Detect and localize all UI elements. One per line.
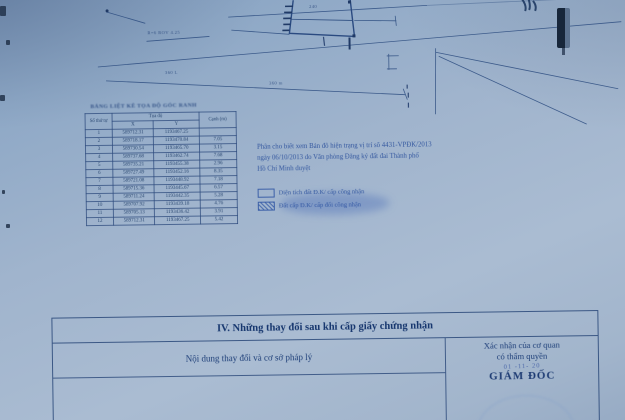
- parcel-outline: [282, 0, 356, 50]
- left-column-header: Nội dung thay đổi và cơ sở pháp lý: [53, 338, 445, 378]
- coord-cell: 5.42: [200, 216, 237, 225]
- edge-speck: [0, 95, 5, 101]
- coord-row: 12589712.311193467.255.42: [86, 216, 237, 226]
- edge-speck: [6, 40, 10, 45]
- section-iv-box: IV. Những thay đổi sau khi cấp giấy chứn…: [51, 310, 600, 420]
- ink-smudge: [280, 192, 390, 216]
- map-road-label: R=6 ROV 4.25: [147, 30, 180, 35]
- coord-cell: 1193467.25: [155, 216, 201, 225]
- section-iv-left-column: Nội dung thay đổi và cơ sở pháp lý Chuyể…: [53, 338, 446, 420]
- coord-cell: 12: [86, 217, 113, 225]
- parcel-number-label: 240: [309, 4, 317, 9]
- note-line-3: Hồ Chí Minh duyệt: [257, 161, 447, 175]
- legend-item-2: Đất cấp Đ.K/ cấp đổi công nhận: [258, 197, 458, 213]
- photographed-land-certificate: R=6 ROV 4.25 360 L 360 m 240 BẢNG LIỆT K…: [0, 0, 625, 420]
- map-distance-label-right: 360 m: [269, 80, 283, 85]
- map-legend: Diện tích đất Đ.K/ cấp công nhận Đất cấp…: [258, 184, 458, 213]
- round-seal-outline: [476, 394, 575, 420]
- edge-speck: [0, 6, 6, 16]
- legend-swatch-hatched-icon: [258, 202, 275, 211]
- vegetation-scribble-icon: [522, 0, 536, 11]
- right-column-header: Xác nhận của cơ quan có thẩm quyền: [446, 336, 598, 363]
- map-reference-note: Phần cho biết xem Bản đồ hiện trạng vị t…: [257, 139, 447, 175]
- binder-mark: [557, 8, 570, 48]
- section-iv-right-column: Xác nhận của cơ quan có thẩm quyền 01 -1…: [445, 336, 599, 420]
- map-distance-label-left: 360 L: [165, 70, 178, 75]
- coordinate-table: Số thứ tự Tọa độ Cạnh (m) X Y 1589712.31…: [85, 111, 239, 226]
- edge-speck: [6, 224, 10, 228]
- section-iv-columns: Nội dung thay đổi và cơ sở pháp lý Chuyể…: [53, 336, 599, 420]
- binder-mark-tail: [562, 48, 565, 55]
- legend-swatch-empty-icon: [258, 189, 275, 198]
- edge-speck: [2, 190, 5, 194]
- col-header-length: Cạnh (m): [199, 112, 236, 129]
- col-header-stt: Số thứ tự: [85, 113, 112, 129]
- document-paper: R=6 ROV 4.25 360 L 360 m 240 BẢNG LIỆT K…: [0, 0, 625, 420]
- coord-cell: 589712.31: [113, 217, 155, 226]
